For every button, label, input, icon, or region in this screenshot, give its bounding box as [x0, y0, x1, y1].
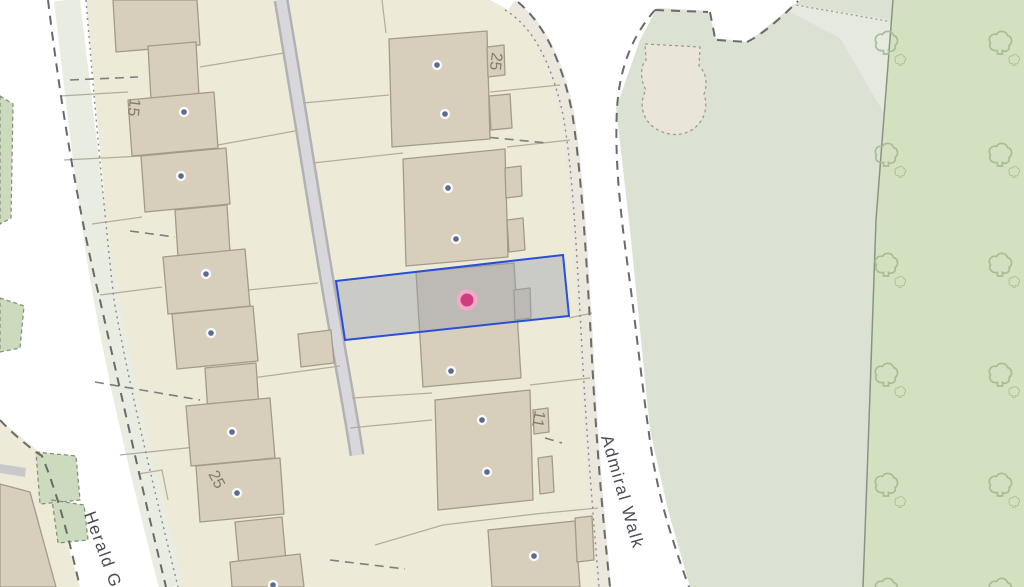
house-number-11: 11 — [528, 409, 548, 428]
location-marker-icon[interactable] — [459, 292, 476, 309]
map-canvas[interactable]: Admiral Walk Herald G 25 15 11 25 — [0, 0, 1024, 587]
street-label-herald: Herald G — [80, 509, 125, 587]
building — [505, 166, 522, 198]
house-number-25-top: 25 — [486, 52, 505, 72]
footpath-island — [642, 44, 707, 135]
building — [175, 205, 230, 257]
address-point-icon — [452, 235, 460, 243]
address-point-icon — [530, 552, 538, 560]
address-point-icon — [269, 581, 277, 587]
address-point-icon — [441, 110, 449, 118]
address-point-icon — [233, 489, 241, 497]
address-point-icon — [207, 329, 215, 337]
building — [148, 42, 199, 100]
address-point-icon — [228, 428, 236, 436]
address-point-icon — [478, 416, 486, 424]
map-viewport[interactable]: Admiral Walk Herald G 25 15 11 25 — [0, 0, 1024, 587]
building — [507, 218, 525, 252]
building — [163, 249, 250, 314]
house-number-15: 15 — [124, 98, 143, 118]
building — [298, 330, 334, 367]
address-point-icon — [447, 367, 455, 375]
building — [403, 149, 508, 266]
building — [172, 306, 258, 369]
address-point-icon — [202, 270, 210, 278]
building — [141, 148, 230, 212]
building — [538, 456, 554, 494]
address-point-icon — [180, 108, 188, 116]
building — [435, 390, 533, 510]
address-point-icon — [444, 184, 452, 192]
building — [489, 94, 512, 130]
address-point-icon — [483, 468, 491, 476]
building — [575, 516, 594, 562]
woodland-area — [863, 0, 1024, 587]
address-point-icon — [433, 61, 441, 69]
building — [389, 31, 490, 147]
address-point-icon — [177, 172, 185, 180]
